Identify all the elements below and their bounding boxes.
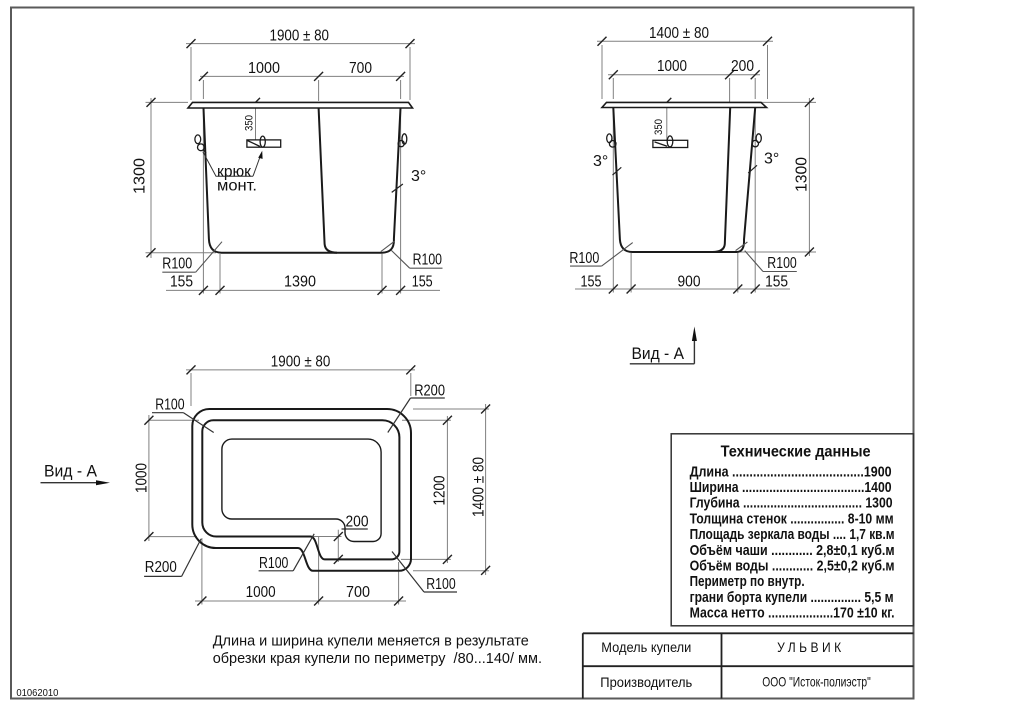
svg-text:3°: 3° xyxy=(764,150,779,167)
svg-text:Длина .......................: Длина ..................................… xyxy=(690,463,892,480)
svg-text:700: 700 xyxy=(349,60,372,77)
svg-text:1400 ± 80: 1400 ± 80 xyxy=(471,457,488,517)
svg-text:1390: 1390 xyxy=(284,273,316,290)
svg-text:R100: R100 xyxy=(162,256,192,273)
svg-text:1900 ± 80: 1900 ± 80 xyxy=(271,354,331,371)
svg-text:1000: 1000 xyxy=(134,463,151,493)
svg-text:R200: R200 xyxy=(414,383,445,400)
svg-text:Производитель: Производитель xyxy=(600,674,692,690)
svg-text:грани борта купели ...........: грани борта купели ............... 5,5 м xyxy=(690,589,894,606)
svg-text:Ширина .......................: Ширина .................................… xyxy=(690,479,892,496)
svg-text:1000: 1000 xyxy=(657,58,687,75)
svg-text:Технические данные: Технические данные xyxy=(721,443,871,460)
svg-text:350: 350 xyxy=(244,115,256,131)
svg-text:R100: R100 xyxy=(155,397,184,414)
svg-text:Объём чаши ............ 2,8±0,: Объём чаши ............ 2,8±0,1 куб.м xyxy=(690,542,895,559)
svg-text:Модель купели: Модель купели xyxy=(601,639,691,655)
svg-text:Глубина ......................: Глубина ................................… xyxy=(690,495,893,512)
svg-text:Объём воды ............ 2,5±0,: Объём воды ............ 2,5±0,2 куб.м xyxy=(690,558,895,575)
svg-text:1900 ± 80: 1900 ± 80 xyxy=(270,28,330,45)
svg-text:R100: R100 xyxy=(767,255,797,272)
svg-text:350: 350 xyxy=(653,119,665,135)
svg-text:155: 155 xyxy=(170,273,193,290)
svg-text:900: 900 xyxy=(678,273,701,290)
svg-text:R100: R100 xyxy=(413,252,442,269)
svg-text:УЛЬВИК: УЛЬВИК xyxy=(777,639,845,655)
svg-text:1000: 1000 xyxy=(248,60,280,77)
svg-text:R100: R100 xyxy=(426,576,455,593)
svg-text:155: 155 xyxy=(765,273,788,290)
svg-text:R100: R100 xyxy=(569,250,599,267)
svg-text:Масса нетто ..................: Масса нетто ...................170 ±10 к… xyxy=(690,605,895,622)
svg-text:R200: R200 xyxy=(145,559,177,576)
svg-text:1200: 1200 xyxy=(432,475,449,505)
svg-text:Вид - А: Вид - А xyxy=(632,345,685,363)
svg-text:155: 155 xyxy=(581,273,602,290)
svg-text:1000: 1000 xyxy=(246,584,276,601)
svg-text:Площадь зеркала воды .... 1,7: Площадь зеркала воды .... 1,7 кв.м xyxy=(690,526,895,543)
svg-text:01062010: 01062010 xyxy=(16,687,58,699)
svg-text:1400 ± 80: 1400 ± 80 xyxy=(649,25,709,42)
svg-text:ООО "Исток-полиэстр": ООО "Исток-полиэстр" xyxy=(762,674,871,690)
svg-text:Вид - А: Вид - А xyxy=(44,463,97,481)
svg-text:200: 200 xyxy=(346,514,369,531)
svg-text:обрезки края купели по перимет: обрезки края купели по периметру /80...1… xyxy=(213,651,542,667)
svg-text:155: 155 xyxy=(412,273,433,290)
svg-text:R100: R100 xyxy=(259,555,288,572)
svg-text:Длина и ширина купели меняется: Длина и ширина купели меняется в результ… xyxy=(213,634,529,650)
svg-text:Периметр по внутр.: Периметр по внутр. xyxy=(690,573,805,590)
svg-text:3°: 3° xyxy=(411,168,426,185)
svg-text:700: 700 xyxy=(346,584,370,601)
svg-text:монт.: монт. xyxy=(217,178,257,195)
svg-text:200: 200 xyxy=(731,58,754,75)
svg-text:1300: 1300 xyxy=(794,157,811,192)
svg-text:Толщина стенок ...............: Толщина стенок ................ 8-10 мм xyxy=(690,510,894,527)
svg-text:1300: 1300 xyxy=(132,158,149,194)
svg-text:3°: 3° xyxy=(593,153,608,170)
